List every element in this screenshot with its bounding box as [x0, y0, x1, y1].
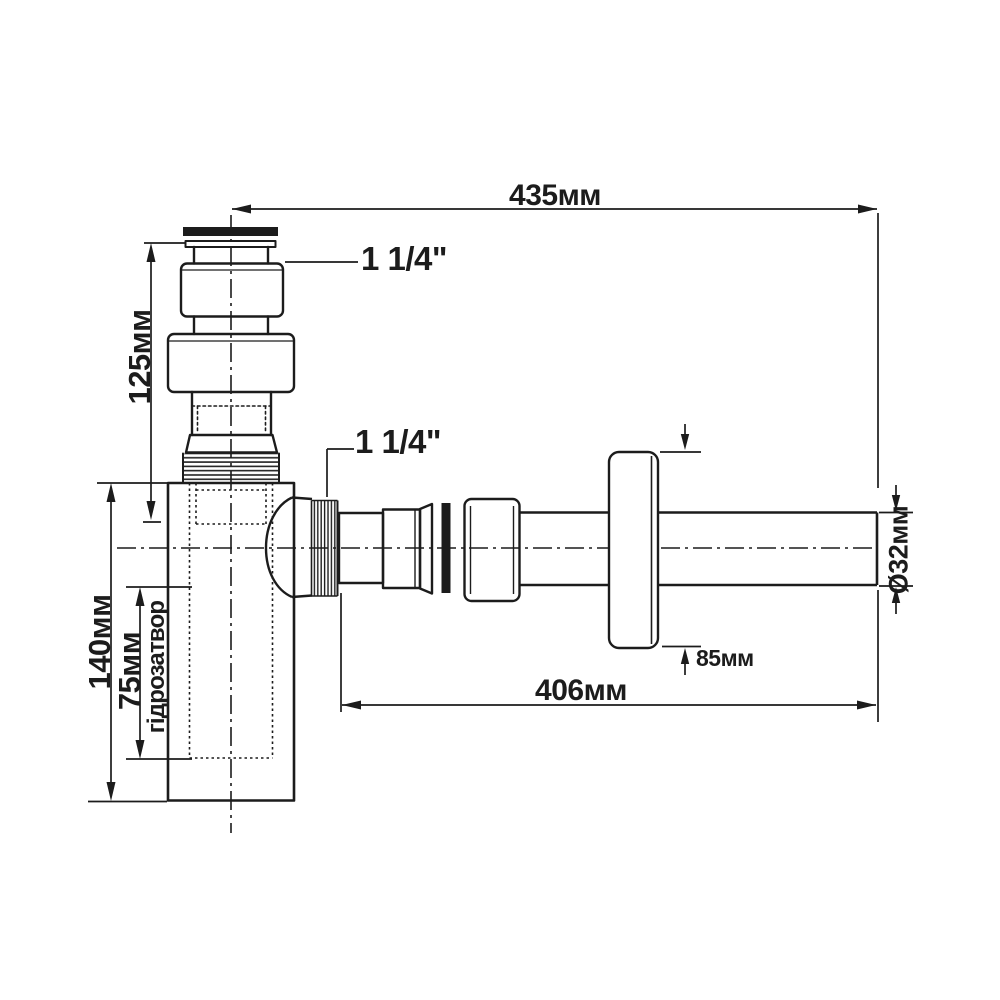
dim-label-top-width: 435мм	[475, 179, 635, 213]
dim-top-width	[232, 205, 878, 723]
o-ring-seal	[442, 503, 451, 593]
water-seal-caption: гідрозатвор	[143, 601, 171, 734]
dimension-lines	[88, 205, 913, 802]
drain-flange-rim	[186, 241, 276, 247]
wall-flange	[609, 452, 658, 648]
trap-hidden-inner-tube	[190, 483, 273, 758]
dim-flange-offset	[660, 424, 701, 675]
dim-label-bottom-width: 406мм	[501, 674, 661, 708]
trap-body	[168, 483, 312, 801]
dim-label-inlet-height: 125мм	[122, 309, 158, 404]
wall-pipe-nut	[465, 499, 520, 601]
inlet-upper-nut	[181, 264, 283, 317]
drain-flange-top-bar	[183, 227, 278, 236]
outlet-threads	[312, 501, 338, 597]
thread-size-label-outlet: 1 1/4"	[355, 423, 441, 461]
technical-drawing-page: 435мм 406мм 1 1/4" 1 1/4" 85мм 125мм 140…	[0, 0, 1000, 1000]
thread-size-label-inlet: 1 1/4"	[361, 240, 447, 278]
inlet-threads	[183, 454, 279, 483]
dim-label-pipe-diameter: Ø32мм	[884, 506, 915, 594]
outlet-assembly	[312, 452, 878, 648]
dim-label-flange-offset: 85мм	[696, 645, 754, 672]
leader-outlet-thread	[327, 449, 354, 497]
technical-drawing-svg	[0, 0, 1000, 1000]
